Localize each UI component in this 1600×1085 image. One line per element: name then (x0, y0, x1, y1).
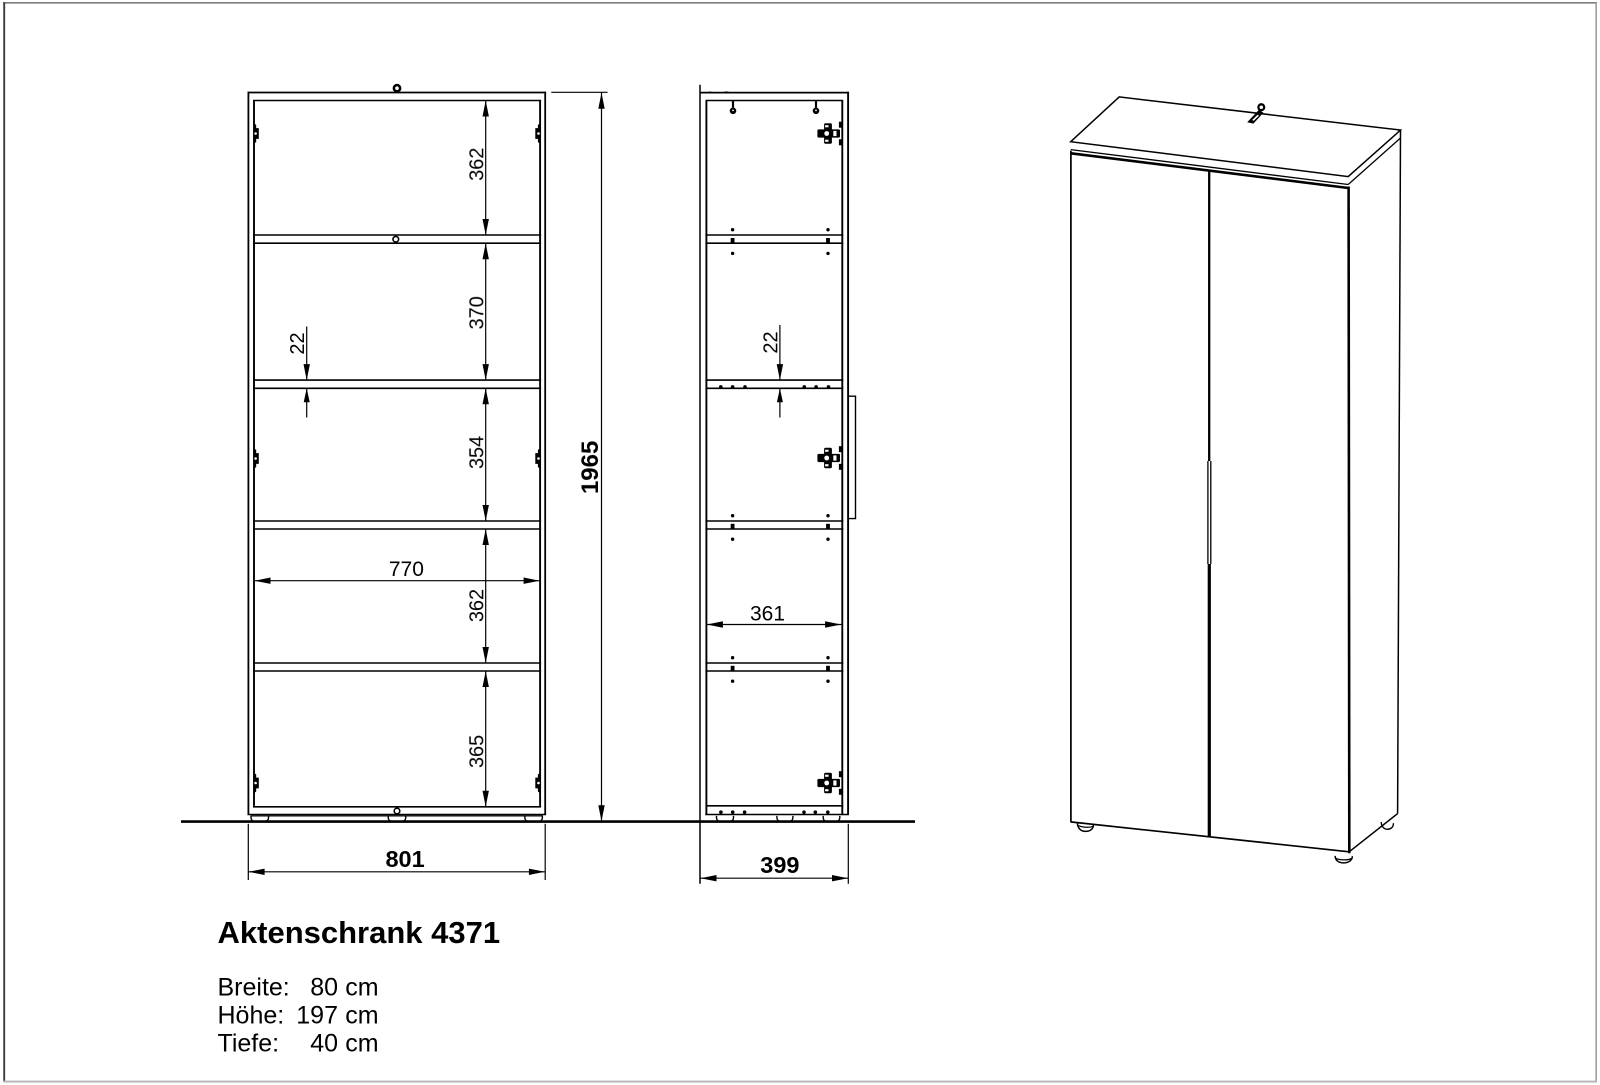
svg-text:801: 801 (385, 846, 424, 872)
svg-text:770: 770 (389, 558, 424, 581)
svg-text:80: 80 (310, 974, 338, 1002)
svg-text:cm: cm (345, 974, 378, 1002)
svg-text:361: 361 (750, 602, 785, 625)
svg-text:22: 22 (287, 332, 309, 354)
svg-text:399: 399 (760, 852, 799, 878)
svg-text:362: 362 (466, 148, 488, 181)
svg-text:197: 197 (296, 1002, 338, 1030)
svg-text:354: 354 (466, 436, 488, 469)
svg-text:22: 22 (760, 331, 782, 353)
svg-text:40: 40 (310, 1030, 338, 1058)
svg-text:Breite:: Breite: (218, 974, 290, 1002)
svg-text:cm: cm (345, 1030, 378, 1058)
svg-text:370: 370 (466, 296, 488, 329)
svg-text:Höhe:: Höhe: (218, 1002, 285, 1030)
svg-text:Tiefe:: Tiefe: (218, 1030, 280, 1058)
svg-text:Aktenschrank 4371: Aktenschrank 4371 (218, 915, 501, 950)
svg-text:cm: cm (345, 1002, 378, 1030)
svg-text:365: 365 (466, 735, 488, 768)
svg-text:1965: 1965 (577, 441, 604, 494)
svg-text:362: 362 (466, 589, 488, 622)
